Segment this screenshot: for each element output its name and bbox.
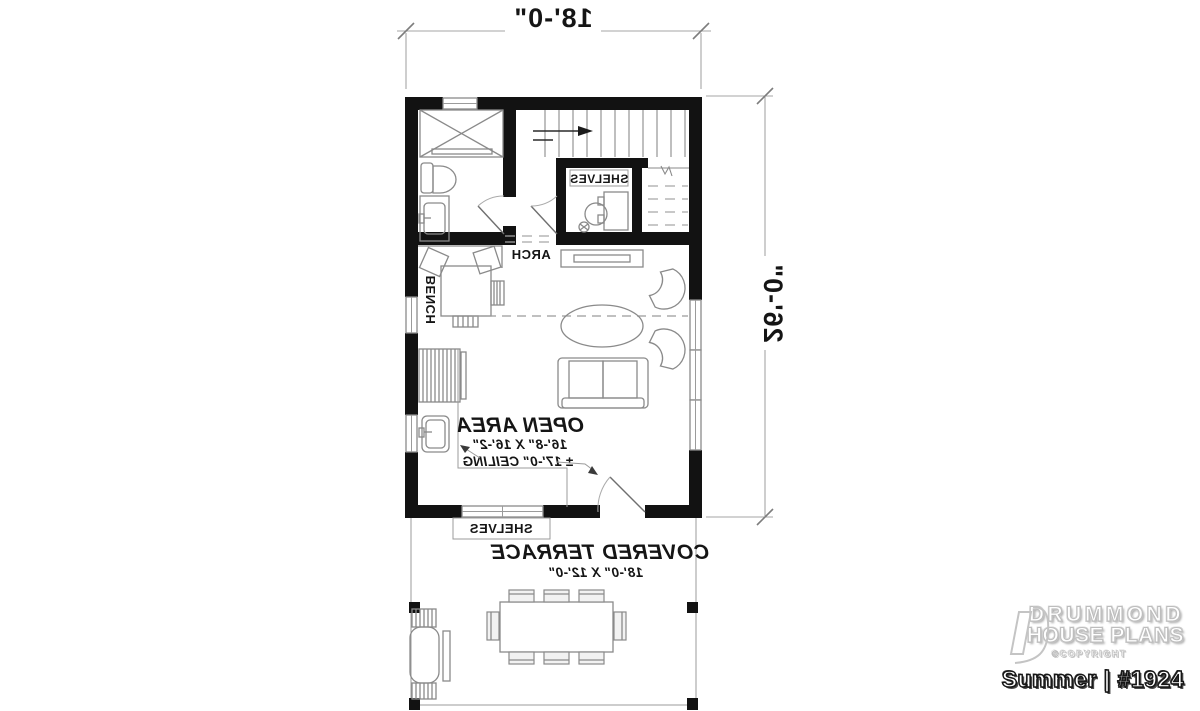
logo-text: DRUMMOND HOUSE PLANS <box>1027 604 1184 646</box>
dimension-right-text: 26'-0" <box>758 263 788 342</box>
terrace-post <box>409 698 420 710</box>
bench-nook: BENCH <box>418 246 504 327</box>
under-stair-dashed <box>648 166 689 225</box>
entry-door <box>598 477 645 512</box>
window-right-band <box>690 300 701 450</box>
dining-table <box>487 590 626 664</box>
bench-table <box>441 266 491 316</box>
window-top <box>443 98 477 109</box>
logo-company-line1: DRUMMOND <box>1029 604 1184 625</box>
terrace-post <box>687 602 698 613</box>
open-area-title: OPEN AREA <box>456 414 585 437</box>
open-area-size: 16'-8" X 16'-2" <box>473 437 568 452</box>
bathroom-door <box>478 196 504 234</box>
logo: DRUMMOND HOUSE PLANS <box>1027 604 1184 646</box>
bench-side-chair <box>491 281 504 305</box>
tv-console <box>561 250 643 267</box>
hall-door <box>531 196 557 234</box>
branding-block: DRUMMOND HOUSE PLANS ©COPYRIGHT Summer |… <box>1002 604 1184 693</box>
kitchen-sink <box>419 416 449 452</box>
bench-stool <box>453 316 478 327</box>
logo-company-line2: HOUSE PLANS <box>1027 625 1184 646</box>
dimension-right: 26'-0" <box>706 88 788 525</box>
terrace-title: COVERED TERRACE <box>490 541 709 564</box>
sofa <box>558 358 648 408</box>
chaise-lounge <box>410 609 450 699</box>
arch-label: ARCH <box>511 247 551 262</box>
logo-d-mark-icon <box>1002 604 1050 668</box>
chaise-side-table <box>443 631 450 681</box>
window-left-bench <box>406 297 417 333</box>
dimension-top-text: 18'-0" <box>513 3 592 33</box>
dimension-top: 18'-0" <box>397 3 711 89</box>
bench-label: BENCH <box>423 276 438 325</box>
stair-direction-arrow <box>533 126 593 140</box>
stair-treads <box>545 110 685 157</box>
tub-chair-lower <box>646 322 692 373</box>
window-left-kitchen <box>406 415 417 452</box>
coffee-table <box>561 305 643 347</box>
terrace-post <box>687 698 698 710</box>
desk <box>598 192 628 230</box>
covered-terrace: SHELVES COVERED TERRACE 18'-0" X 12'-0" <box>409 518 709 710</box>
floor-plan-page: 18'-0" 26'-0" <box>0 0 1200 711</box>
terrace-shelves: SHELVES <box>453 518 550 539</box>
pillow <box>419 247 448 276</box>
window-bottom <box>462 506 543 517</box>
terrace-post <box>409 602 420 613</box>
shelves-closet-label: SHELVES <box>570 172 629 186</box>
plan-name-text: Summer | #1924 <box>1002 666 1184 693</box>
copyright-text: ©COPYRIGHT <box>1052 649 1127 659</box>
tub-chair-upper <box>646 265 692 316</box>
shower <box>420 110 503 157</box>
open-area-ceiling: ± 17'-0" CEILING <box>462 454 573 469</box>
shelves-closet: SHELVES <box>570 170 629 232</box>
bathroom <box>419 110 557 241</box>
terrace-shelves-label: SHELVES <box>469 521 532 536</box>
open-area-labels: OPEN AREA 16'-8" X 16'-2" ± 17'-0" CEILI… <box>456 414 598 475</box>
pillow <box>473 246 501 274</box>
floor-grommet <box>579 222 589 232</box>
terrace-size: 18'-0" X 12'-0" <box>549 565 644 580</box>
toilet <box>421 163 456 193</box>
range <box>419 349 466 402</box>
